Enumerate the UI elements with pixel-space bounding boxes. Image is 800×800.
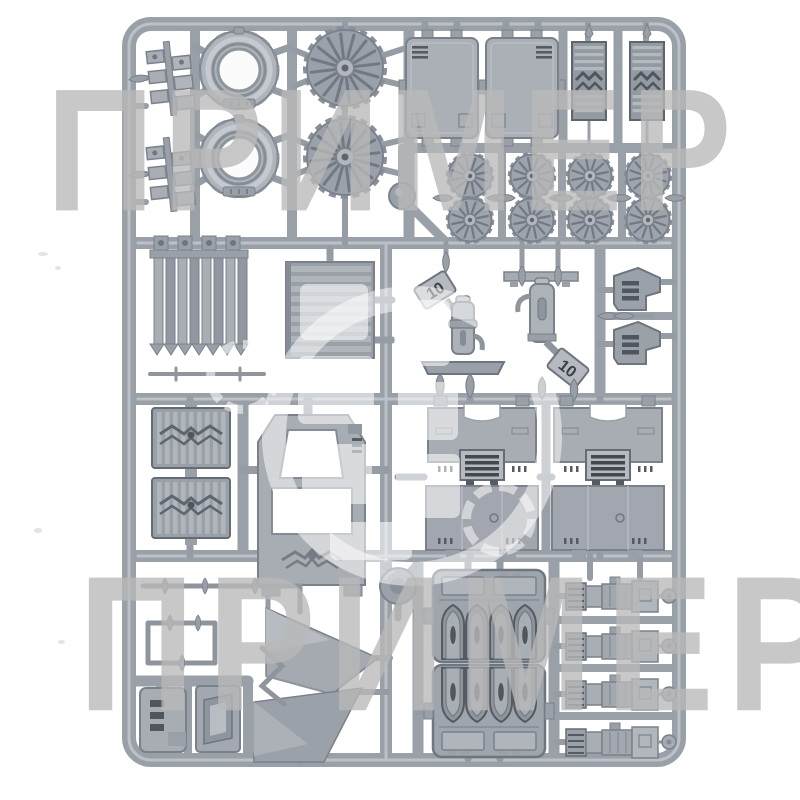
rod-pin	[195, 615, 200, 631]
engine-cowling-ring-1	[200, 27, 278, 109]
slotted-bracket-2	[614, 322, 660, 364]
rod-pin	[179, 655, 184, 671]
roof-hatch-panel-2	[479, 30, 565, 146]
heavy-weapon-2	[566, 627, 676, 662]
spear-pin	[555, 266, 562, 286]
ball-joint	[389, 183, 415, 209]
rod-pin	[202, 578, 207, 594]
radiator-assembly	[150, 236, 248, 355]
slotted-bracket-1	[614, 268, 660, 310]
sprue-frame: 10 10	[0, 0, 800, 800]
vent-grille-panel	[286, 262, 374, 358]
spear-pin	[443, 252, 450, 272]
axle-rod-thin	[150, 368, 264, 380]
duct-box	[196, 678, 240, 752]
photo-speck	[58, 640, 65, 644]
cockpit-frame	[258, 415, 365, 596]
heavy-weapon-4	[566, 723, 676, 758]
photo-speck	[34, 528, 42, 533]
arched-intake-housing-1	[424, 570, 554, 662]
large-turbofan-1	[305, 28, 385, 108]
turret-disc	[380, 568, 416, 604]
rod-pin	[252, 578, 257, 594]
suspension-strut-2: 10	[504, 272, 590, 401]
wing-panel-2	[254, 688, 362, 762]
large-turbofan-2	[305, 117, 385, 197]
eagle-grille-panel-1	[152, 401, 230, 475]
heavy-weapon-3	[566, 675, 676, 710]
louvre-armour-panel-2	[630, 24, 664, 144]
spear-pin	[519, 266, 526, 286]
rod-pin	[162, 578, 167, 594]
rod-pin	[167, 615, 172, 631]
roof-hatch-panel-1	[399, 30, 485, 146]
suspension-strut-1: 10	[413, 270, 504, 398]
hull-roof-panel-2	[552, 396, 664, 558]
photo-speck	[55, 266, 61, 270]
arched-intake-housing-2	[424, 665, 554, 757]
heavy-weapon-1	[566, 577, 676, 612]
photo-speck	[38, 252, 48, 256]
sprue-photo: 10 10	[0, 0, 800, 800]
engine-cowling-ring-2	[200, 115, 278, 197]
louvre-armour-panel-1	[572, 24, 606, 144]
slotted-box	[140, 681, 186, 752]
hull-roof-panel-1	[426, 396, 538, 558]
wing-panel-1	[266, 608, 378, 694]
eagle-grille-panel-2	[152, 471, 230, 545]
